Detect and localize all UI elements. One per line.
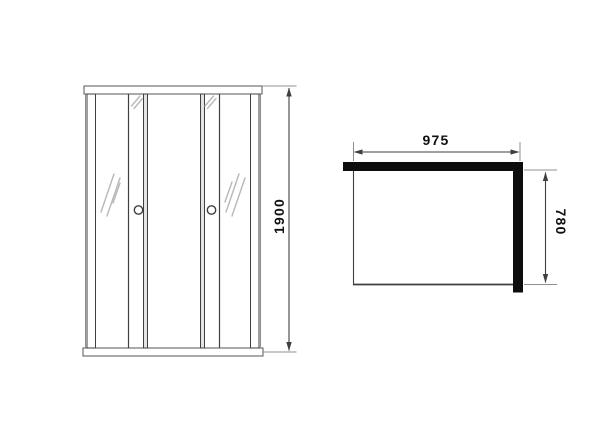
product-dimension-diagram: 1900 975 780 (0, 0, 600, 425)
left-handle-knob-icon (134, 206, 142, 214)
arrow-right-icon (511, 149, 520, 154)
dimension-label-height: 1900 (271, 198, 287, 234)
top-rail (84, 86, 262, 94)
top-view (343, 162, 523, 293)
arrow-down-icon (543, 274, 548, 283)
arrow-down-icon (286, 342, 291, 351)
dimension-label-width: 975 (423, 132, 450, 148)
front-view (83, 86, 263, 356)
arrow-up-icon (286, 88, 291, 97)
right-handle-knob-icon (207, 206, 215, 214)
glass-reflection-marks (101, 96, 245, 216)
wall-panel-top (343, 162, 523, 171)
drawing-svg (0, 0, 600, 425)
arrow-up-icon (543, 172, 548, 181)
side-panel-right (513, 162, 523, 293)
bottom-rail (83, 348, 263, 356)
right-frame-profile (251, 94, 260, 348)
left-frame-profile (87, 94, 96, 348)
dimension-label-depth: 780 (553, 209, 569, 236)
left-door-stile (144, 94, 148, 348)
arrow-left-icon (354, 149, 363, 154)
right-door-stile (201, 94, 205, 348)
